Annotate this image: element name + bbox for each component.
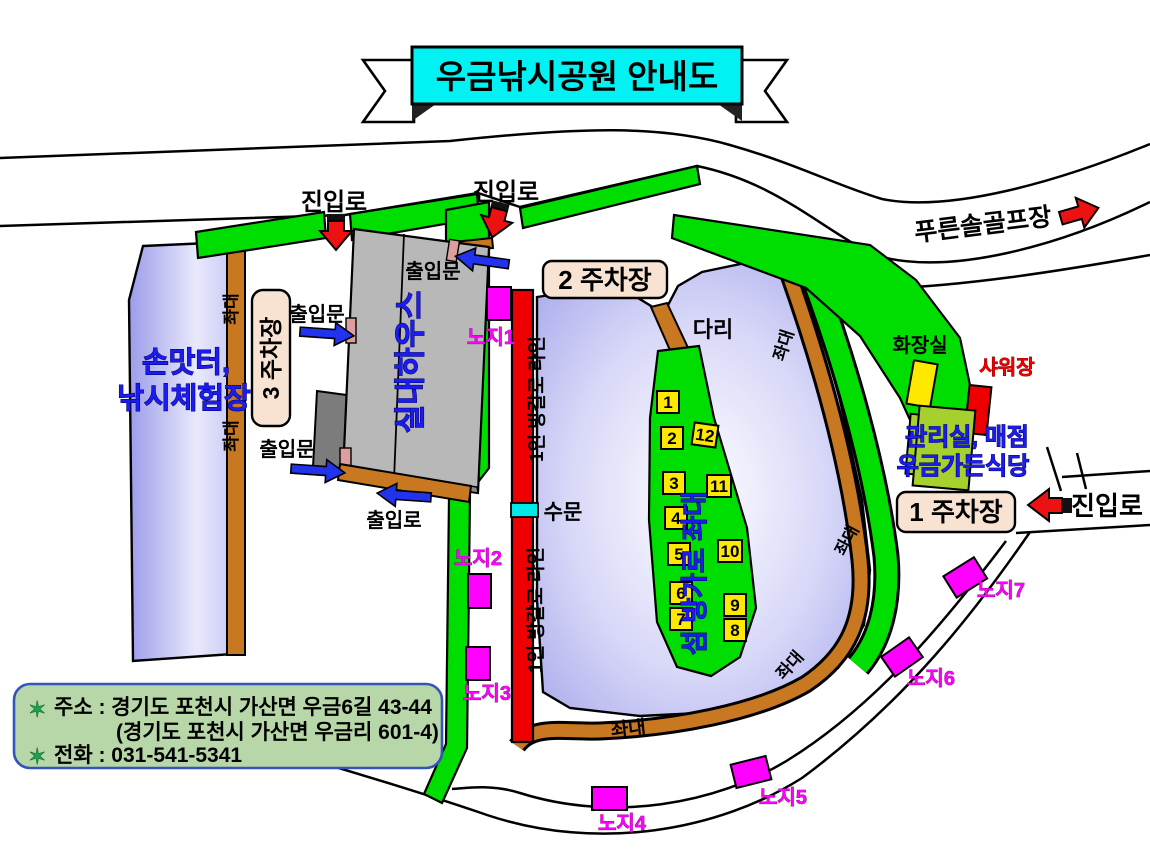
noji-label: 노지6 <box>907 667 955 690</box>
noji-label: 노지7 <box>977 579 1025 602</box>
map-canvas: 좌대 좌대 손맛터, 낚시체험장 좌대 좌대 좌대 좌대 1인 방갈로 라인 1… <box>0 0 1150 853</box>
experience-pond-label-1: 손맛터, <box>142 346 230 379</box>
experience-pond-label-2: 낚시체험장 <box>117 382 251 415</box>
sluice-gate-label: 수문 <box>544 501 583 524</box>
toilet-label: 화장실 <box>892 334 947 357</box>
island-spot-number: 2 <box>667 429 676 448</box>
right-road-top-edge <box>1062 471 1150 477</box>
noji-label: 노지1 <box>467 326 515 349</box>
info-box: ✶ 주소 : 경기도 포천시 가산면 우금6길 43-44 (경기도 포천시 가… <box>14 684 442 769</box>
island-spot-number: 12 <box>694 425 715 446</box>
left-arrow-icon <box>1028 489 1072 521</box>
sluice-gate-marker <box>511 503 538 517</box>
main-road-top-edge <box>0 130 1150 202</box>
approach-label: 진입로 <box>1071 491 1143 521</box>
ribbon-tail-right <box>736 60 787 122</box>
island-spot-number: 11 <box>710 477 728 496</box>
junction-line-2 <box>1077 453 1086 489</box>
gate-label: 출입문 <box>405 260 460 283</box>
address-line-1: 주소 : 경기도 포천시 가산면 우금6길 43-44 <box>54 696 432 719</box>
island-spot-number: 10 <box>721 542 740 561</box>
parking-2: 2 주차장 <box>543 261 667 298</box>
park-guide-map: 좌대 좌대 손맛터, 낚시체험장 좌대 좌대 좌대 좌대 1인 방갈로 라인 1… <box>0 0 1150 853</box>
approach-label: 진입로 <box>301 189 367 216</box>
star-icon: ✶ <box>28 697 46 722</box>
noji-label: 노지3 <box>463 682 511 705</box>
approach-label: 진입로 <box>473 179 539 206</box>
gate-label: 출입문 <box>259 438 314 461</box>
gate-2: 출입문 <box>289 303 354 347</box>
experience-pond <box>129 242 233 661</box>
bungalow-line-label: 1인 방갈로 라인 <box>526 336 548 462</box>
platform-label: 좌대 <box>610 716 647 742</box>
noji-marker <box>592 787 627 810</box>
island-spot-number: 1 <box>663 393 672 412</box>
noji-label: 노지2 <box>454 547 502 570</box>
star-icon: ✶ <box>28 744 46 769</box>
approach-3: 진입로 <box>1028 489 1143 521</box>
noji-marker <box>487 287 511 320</box>
gate-exit-label: 출입로 <box>366 509 421 532</box>
ribbon-tail-left <box>363 60 414 122</box>
title-banner: 우금낚시공원 안내도 <box>363 47 787 122</box>
parking-3-label: 3 주차장 <box>258 317 284 400</box>
phone-line: 전화 : 031-541-5341 <box>54 744 242 767</box>
platform-label: 좌대 <box>222 293 241 324</box>
bungalow-line-label: 1인 방갈로 라인 <box>525 547 547 673</box>
ribbon-fold-right <box>718 104 742 121</box>
junction-line-1 <box>1047 447 1061 491</box>
golf-course-label: 푸른솔골프장 <box>913 203 1053 248</box>
noji-label: 노지4 <box>598 812 647 835</box>
noji-label: 노지5 <box>759 786 807 809</box>
parking-1: 1 주차장 <box>897 492 1015 532</box>
parking-1-label: 1 주차장 <box>909 497 1003 527</box>
office-label: 관리실, 매점 <box>905 424 1029 451</box>
ribbon-fold-left <box>412 104 436 121</box>
parking-2-label: 2 주차장 <box>558 265 652 295</box>
restaurant-label: 우금가든식당 <box>897 453 1029 480</box>
right-road-bottom-edge <box>1016 525 1150 533</box>
noji-marker <box>731 756 772 788</box>
island-spot-number: 3 <box>669 474 678 493</box>
noji-marker <box>466 647 490 680</box>
shower-label: 샤워장 <box>979 356 1035 379</box>
island-platform-label: 섬 방가로 좌대 <box>680 491 710 655</box>
parking-3: 3 주차장 <box>252 290 290 426</box>
island-spot-number: 8 <box>730 621 739 640</box>
island-spot-number: 9 <box>730 596 739 615</box>
indoor-house-label: 실내하우스 <box>393 291 428 434</box>
address-line-2: (경기도 포천시 가산면 우금리 601-4) <box>116 721 439 744</box>
bridge-label: 다리 <box>693 317 733 342</box>
platform-label: 좌대 <box>222 420 241 451</box>
noji-marker <box>468 574 491 608</box>
map-title: 우금낚시공원 안내도 <box>436 58 718 95</box>
